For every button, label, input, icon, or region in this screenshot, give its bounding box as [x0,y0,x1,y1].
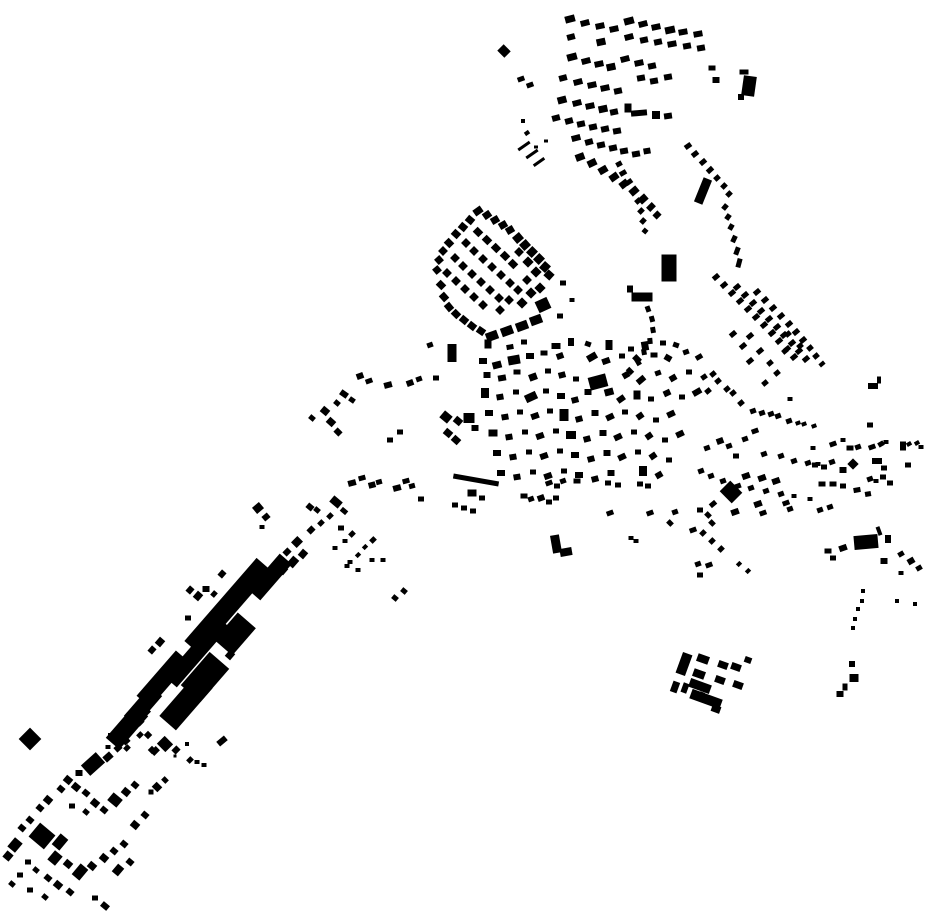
building-footprint [458,222,469,233]
building-footprint [476,326,487,336]
building-footprint [497,470,505,476]
building-footprint [637,482,643,487]
building-footprint [432,265,442,275]
building-footprint [608,144,617,152]
building-footprint [767,411,774,418]
building-footprint [418,497,424,502]
building-footprint [830,482,837,487]
building-footprint [487,262,497,272]
building-footprint [513,473,521,480]
building-footprint [356,568,361,572]
building-footprint [801,421,807,426]
building-footprint [666,410,676,419]
building-footprint [171,745,180,754]
building-footprint [753,288,762,296]
building-footprint [739,342,748,350]
building-footprint [668,374,677,383]
building-footprint [195,760,200,764]
building-footprint [900,442,906,451]
building-footprint [291,536,303,548]
building-footprint [566,431,576,439]
building-footprint [100,901,110,911]
building-footprint [613,127,622,134]
building-footprint [624,33,634,41]
building-footprint [788,397,793,401]
building-footprint [747,485,754,492]
building-footprint [738,94,744,100]
building-footprint [692,668,706,680]
building-footprint [899,571,904,575]
building-footprint [851,626,855,630]
building-footprint [705,561,713,568]
building-footprint [819,482,826,487]
building-footprint [529,314,543,327]
building-footprint [762,488,769,495]
building-footprint [825,549,832,554]
building-footprint [467,269,477,279]
building-footprint [355,552,361,558]
building-footprint [76,770,83,776]
building-footprint [387,438,393,443]
building-footprint [774,413,781,420]
building-footprint [537,494,546,502]
building-footprint [641,227,648,234]
building-footprint [723,385,731,393]
building-footprint [516,297,527,308]
building-footprint [53,880,64,891]
building-footprint [853,617,857,621]
building-footprint [468,490,477,497]
building-footprint [174,755,177,758]
building-footprint [25,815,34,824]
building-footprint [161,776,169,784]
building-footprint [460,284,470,294]
building-footprint [678,28,688,35]
building-footprint [606,63,616,72]
building-footprint [556,352,565,360]
building-footprint [818,361,825,368]
building-footprint [469,246,479,256]
building-footprint [305,502,314,511]
building-footprint [210,590,218,598]
building-footprint [664,112,673,119]
building-footprint [534,146,538,149]
building-footprint [850,674,859,682]
building-footprint [554,484,560,489]
building-footprint [732,680,744,690]
building-footprint [741,472,751,480]
building-footprint [699,529,707,537]
building-footprint [625,104,632,113]
building-footprint [365,377,373,384]
building-footprint [663,389,672,397]
building-footprint [838,544,848,552]
building-footprint [692,387,703,397]
building-footprint [308,414,316,422]
building-footprint [837,691,844,697]
building-footprint [749,408,756,415]
building-footprint [566,33,575,41]
building-footprint [47,850,62,866]
building-footprint [509,453,517,460]
building-footprint [717,660,729,670]
building-footprint [485,410,493,416]
building-footprint [719,478,726,485]
building-footprint [580,19,590,27]
building-footprint [326,417,337,428]
building-footprint [121,787,132,798]
building-footprint [467,321,478,331]
building-footprint [557,449,563,454]
building-footprint [524,130,530,136]
building-footprint [348,560,353,564]
building-footprint [790,353,799,361]
building-footprint [647,62,656,70]
building-footprint [560,281,566,286]
building-footprint [543,472,553,480]
building-footprint [777,312,786,320]
building-footprint [637,74,646,81]
building-footprint [709,370,717,378]
building-footprint [746,357,755,365]
building-footprint [609,108,618,116]
building-footprint [680,682,689,693]
building-footprint [82,808,90,816]
building-footprint [63,775,74,786]
building-footprint [785,418,792,425]
building-footprint [606,340,613,350]
building-footprint [81,788,90,797]
building-footprint [733,283,742,291]
building-footprint [533,157,545,167]
building-footprint [905,463,911,468]
building-footprint [451,435,462,446]
building-footprint [651,23,661,31]
building-footprint [757,474,767,482]
building-footprint [551,114,560,122]
building-footprint [594,60,604,68]
building-footprint [790,458,797,465]
building-footprint [766,359,774,367]
building-footprint [402,478,410,485]
building-footprint [653,38,662,46]
building-footprint [217,569,226,578]
building-footprint [72,863,89,880]
building-footprint [539,452,549,460]
building-footprint [119,839,128,848]
cluster-diamond-housing-estate [426,206,574,362]
building-footprint [147,645,156,654]
building-footprint [753,500,763,508]
building-footprint [575,415,583,423]
building-footprint [704,511,712,519]
building-footprint [108,733,112,737]
building-footprint [102,751,113,762]
building-footprint [345,564,350,568]
building-footprint [459,315,470,326]
building-footprint [639,217,647,225]
building-footprint [443,428,454,439]
building-footprint [736,297,745,305]
building-footprint [867,423,873,428]
building-footprint [760,451,767,458]
building-footprint [841,438,846,442]
building-footprint [29,823,56,850]
building-footprint [689,526,697,533]
building-footprint [450,253,460,263]
building-footprint [559,547,572,557]
building-footprint [660,341,666,346]
building-footprint [479,358,487,364]
building-footprint [600,84,610,92]
cluster-northeast-terraced-rows [497,14,757,219]
building-footprint [704,387,712,395]
building-footprint [343,539,348,543]
building-footprint [362,544,368,550]
building-footprint [136,731,144,739]
building-footprint [741,436,748,443]
building-footprint [686,370,692,375]
building-footprint [675,430,685,439]
building-footprint [515,320,529,333]
building-footprint [777,453,784,460]
building-footprint [356,372,365,380]
building-footprint [485,285,495,295]
building-footprint [746,332,755,340]
building-footprint [527,496,534,503]
building-footprint [634,59,644,67]
building-footprint [644,432,653,441]
building-footprint [43,795,54,806]
building-footprint [564,117,573,125]
building-footprint [525,287,536,298]
building-footprint [500,325,514,338]
building-footprint [745,568,751,574]
building-footprint [628,347,634,352]
building-footprint [830,556,836,561]
building-footprint [653,418,659,423]
building-footprint [479,496,485,501]
building-footprint [99,805,108,814]
building-footprint [484,372,491,378]
building-footprint [720,182,728,190]
building-footprint [700,373,708,381]
building-footprint [651,353,658,358]
building-footprint [566,52,577,61]
building-footprint [558,371,566,379]
building-footprint [517,141,530,151]
building-footprint [895,599,899,603]
building-footprint [497,44,510,57]
building-footprint [530,412,540,420]
building-footprint [744,305,753,313]
building-footprint [897,550,905,557]
building-footprint [725,190,733,198]
building-footprint [392,484,401,492]
building-footprint [881,466,887,471]
building-footprint [601,357,611,365]
building-footprint [559,478,566,485]
building-footprint [861,589,865,593]
building-footprint [615,483,621,488]
building-footprint [670,681,680,694]
building-footprint [461,238,471,248]
building-footprint [648,452,657,461]
building-footprint [761,296,770,304]
cluster-south-center-scatter [468,478,716,578]
building-footprint [500,251,511,262]
building-footprint [571,396,579,404]
building-footprint [806,344,814,352]
building-footprint [544,140,548,143]
building-footprint [816,507,823,514]
building-footprint [504,295,514,305]
building-footprint [645,484,651,489]
building-footprint [585,102,595,110]
building-footprint [545,479,553,486]
building-footprint [740,70,749,75]
building-footprint [741,291,750,299]
building-footprint [558,74,567,82]
building-footprint [491,243,502,254]
building-footprint [868,383,878,389]
cluster-village-core [479,338,708,483]
building-footprint [505,278,515,288]
building-footprint [663,354,672,363]
cluster-farm-grid-cluster [670,652,752,714]
building-footprint [866,476,873,483]
building-footprint [348,396,356,404]
building-footprint [472,206,483,217]
building-footprint [709,66,716,71]
building-footprint [535,297,552,313]
building-footprint [714,377,722,385]
building-footprint [605,413,615,422]
cluster-industrial-band [106,512,377,794]
building-footprint [438,246,448,256]
building-footprint [683,42,692,49]
building-footprint [193,591,204,602]
building-footprint [557,95,568,104]
building-footprint [56,784,65,793]
building-footprint [282,547,291,556]
building-footprint [648,397,654,402]
building-footprint [623,16,634,25]
building-footprint [713,174,721,182]
building-footprint [613,433,623,442]
building-footprint [730,508,740,516]
building-footprint [572,99,582,107]
building-footprint [840,484,846,489]
building-footprint [600,430,607,436]
building-footprint [370,558,375,562]
building-footprint [667,40,677,47]
building-footprint [90,798,101,809]
building-footprint [849,661,855,667]
building-footprint [631,430,637,435]
building-footprint [887,481,893,486]
building-footprint [587,81,597,89]
building-footprint [697,508,703,513]
building-footprint [741,75,757,97]
building-footprint [853,534,878,550]
building-footprint [735,258,742,268]
building-footprint [391,594,399,602]
building-footprint [492,360,503,369]
building-footprint [571,452,579,458]
building-footprint [777,491,784,498]
building-footprint [802,355,811,363]
building-footprint [616,394,626,404]
building-footprint [526,81,534,88]
building-footprint [340,507,349,515]
building-footprint [576,120,585,128]
building-footprint [840,467,847,473]
cluster-west-road-hamlet [252,372,499,602]
building-footprint [699,158,708,166]
building-footprint [696,653,710,665]
building-footprint [109,846,118,855]
building-footprint [868,443,876,450]
building-footprint [634,539,639,543]
building-footprint [828,459,835,466]
building-footprint [436,280,447,291]
building-footprint [671,509,678,516]
building-footprint [619,169,628,177]
building-footprint [751,427,759,434]
building-footprint [729,330,738,338]
building-footprint [684,142,693,150]
building-footprint [383,381,392,389]
building-footprint [730,235,737,243]
building-footprint [495,305,505,315]
building-footprint [697,44,706,51]
building-footprint [829,440,837,447]
building-footprint [757,307,766,315]
building-footprint [476,277,486,287]
building-footprint [557,393,565,399]
building-footprint [672,342,679,349]
building-footprint [375,479,382,485]
building-footprint [317,519,325,527]
building-footprint [144,731,152,739]
building-footprint [597,165,608,176]
building-footprint [596,141,605,149]
building-footprint [458,261,468,271]
building-footprint [872,458,882,464]
building-footprint [915,564,923,571]
building-footprint [99,853,110,864]
building-footprint [596,38,606,47]
building-footprint [574,479,581,484]
building-footprint [632,150,641,157]
building-footprint [478,254,488,264]
building-footprint [919,445,924,449]
building-footprint [453,416,464,427]
building-footprint [598,105,608,114]
building-footprint [570,298,575,302]
building-footprint [881,558,888,564]
building-footprint [347,479,356,487]
building-footprint [557,314,563,319]
building-footprint [605,481,611,486]
building-footprint [564,14,575,23]
building-footprint [853,487,861,493]
building-footprint [368,481,376,489]
building-footprint [634,391,641,400]
cluster-southeast-corner-hamlet [811,377,924,497]
building-footprint [521,340,527,345]
